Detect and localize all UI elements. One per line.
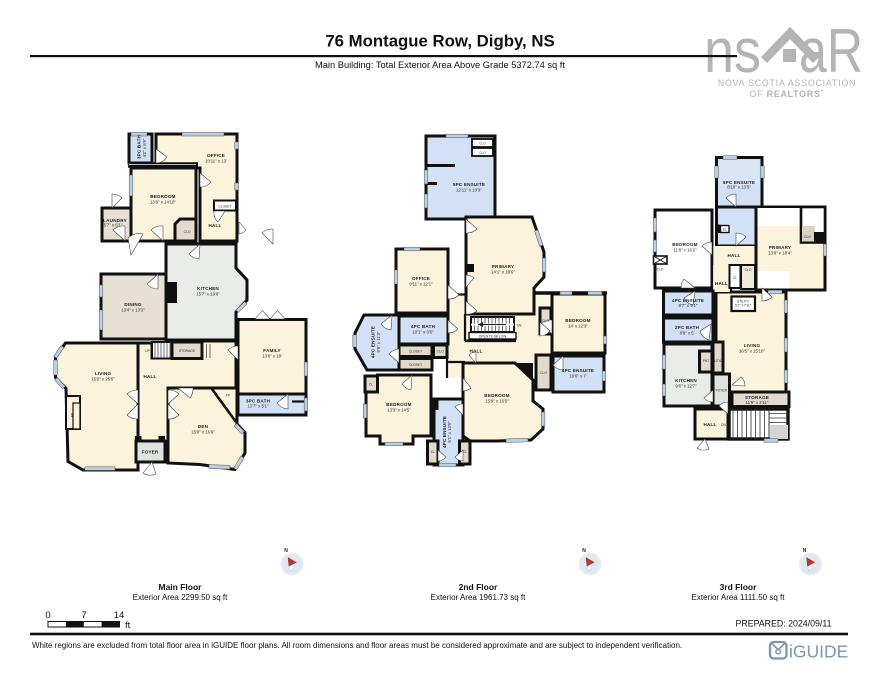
- svg-text:OPEN TO BELOW: OPEN TO BELOW: [479, 334, 507, 338]
- svg-text:14'1" x 18'6": 14'1" x 18'6": [491, 270, 515, 275]
- svg-text:BEDROOM: BEDROOM: [386, 402, 411, 407]
- svg-text:KITCHEN: KITCHEN: [675, 378, 697, 383]
- svg-text:CLOSET: CLOSET: [409, 350, 422, 354]
- svg-text:11'8" x 16'2": 11'8" x 16'2": [673, 248, 697, 253]
- svg-text:CLO: CLO: [184, 230, 191, 234]
- svg-text:14' x 12'3": 14' x 12'3": [568, 324, 588, 329]
- svg-text:OFFICE: OFFICE: [412, 276, 430, 281]
- svg-text:7: 7: [81, 610, 86, 621]
- svg-text:White regions are excluded fro: White regions are excluded from total fl…: [32, 641, 682, 650]
- svg-text:3rd Floor: 3rd Floor: [720, 582, 758, 592]
- svg-text:BEDROOM: BEDROOM: [484, 393, 509, 398]
- svg-text:4PC BATH: 4PC BATH: [411, 324, 436, 329]
- svg-text:Main Building: Total Exterior: Main Building: Total Exterior Area Above…: [315, 60, 565, 70]
- svg-text:ft: ft: [125, 620, 131, 631]
- svg-text:STORAGE: STORAGE: [179, 349, 196, 353]
- svg-text:UP: UP: [145, 349, 150, 353]
- svg-text:CLO: CLO: [540, 371, 547, 375]
- svg-text:3PC BATH: 3PC BATH: [137, 134, 142, 159]
- svg-text:13'6" x 18': 13'6" x 18': [262, 354, 282, 359]
- svg-text:76 Montague Row, Digby, NS: 76 Montague Row, Digby, NS: [325, 32, 554, 51]
- svg-text:13'7" x 5'1": 13'7" x 5'1": [247, 404, 269, 409]
- svg-text:11'9" x 2'11": 11'9" x 2'11": [746, 400, 769, 405]
- svg-text:Exterior Area 1111.50 sq ft: Exterior Area 1111.50 sq ft: [692, 593, 786, 602]
- svg-text:CLO: CLO: [745, 268, 752, 272]
- svg-text:BEDROOM: BEDROOM: [150, 194, 175, 199]
- svg-text:FOYER: FOYER: [716, 389, 728, 393]
- svg-text:FAMILY: FAMILY: [263, 348, 281, 353]
- svg-text:CL: CL: [431, 450, 435, 454]
- svg-text:5'7" x 6'1": 5'7" x 6'1": [104, 223, 123, 228]
- svg-text:0: 0: [45, 610, 50, 621]
- svg-text:CLO: CLO: [804, 235, 811, 239]
- svg-text:12'11" x 10'9": 12'11" x 10'9": [456, 188, 482, 193]
- svg-text:9'6" x 11'3": 9'6" x 11'3": [376, 331, 381, 352]
- svg-text:HALL: HALL: [703, 422, 716, 427]
- svg-text:PNT: PNT: [703, 359, 710, 363]
- svg-text:N: N: [803, 548, 807, 554]
- svg-text:NOVA SCOTIA ASSOCIATION: NOVA SCOTIA ASSOCIATION: [718, 78, 856, 88]
- svg-text:CLO: CLO: [542, 319, 549, 323]
- svg-text:Exterior Area 1961.73 sq ft: Exterior Area 1961.73 sq ft: [431, 593, 527, 602]
- svg-text:HALL: HALL: [469, 349, 482, 354]
- svg-text:OFFICE: OFFICE: [207, 153, 225, 158]
- svg-text:15'7" x 19'8": 15'7" x 19'8": [196, 292, 220, 297]
- svg-text:DN: DN: [721, 423, 726, 427]
- svg-text:PRIMARY: PRIMARY: [492, 264, 514, 269]
- svg-text:10'1" x 6'6": 10'1" x 6'6": [412, 330, 434, 335]
- svg-text:2PC BATH: 2PC BATH: [675, 325, 700, 330]
- svg-text:2nd Floor: 2nd Floor: [459, 582, 498, 592]
- svg-text:ns: ns: [704, 17, 761, 86]
- svg-text:HALL: HALL: [727, 253, 740, 258]
- svg-text:CL: CL: [463, 450, 467, 454]
- svg-text:5PC ENSUITE: 5PC ENSUITE: [453, 182, 485, 187]
- svg-text:OF REALTORS˚: OF REALTORS˚: [750, 89, 825, 99]
- svg-text:HALL: HALL: [715, 281, 728, 286]
- svg-text:CLO: CLO: [437, 350, 444, 354]
- svg-text:FOYER: FOYER: [142, 450, 159, 455]
- svg-text:N: N: [582, 548, 586, 554]
- svg-text:CLO: CLO: [479, 142, 486, 146]
- svg-text:15'9" x 16'5": 15'9" x 16'5": [485, 399, 509, 404]
- svg-text:iGUIDE: iGUIDE: [789, 642, 848, 662]
- svg-text:DN: DN: [517, 324, 522, 328]
- svg-text:HALL: HALL: [208, 223, 221, 228]
- svg-text:8'10" x 13'5": 8'10" x 13'5": [727, 185, 751, 190]
- svg-text:10'6" x 7': 10'6" x 7': [569, 374, 586, 379]
- svg-text:PREPARED: 2024/09/11: PREPARED: 2024/09/11: [735, 619, 831, 629]
- svg-text:PRIMARY: PRIMARY: [769, 245, 791, 250]
- svg-text:13'6" x 14'10": 13'6" x 14'10": [150, 200, 176, 205]
- svg-text:CLO: CLO: [657, 268, 664, 272]
- svg-text:9'6" x 12'7": 9'6" x 12'7": [675, 384, 697, 389]
- svg-text:10'11" x 13': 10'11" x 13': [205, 159, 227, 164]
- svg-text:4PC ENSUITE: 4PC ENSUITE: [562, 368, 594, 373]
- svg-text:15'0" x 25'6": 15'0" x 25'6": [91, 377, 115, 382]
- svg-text:CLOSET: CLOSET: [409, 363, 422, 367]
- svg-text:UTIL: UTIL: [714, 359, 721, 363]
- svg-text:EL: EL: [723, 228, 727, 232]
- svg-text:BEDROOM: BEDROOM: [672, 242, 697, 247]
- svg-text:5'2" x 7'11": 5'2" x 7'11": [735, 304, 752, 308]
- svg-text:6'1" x 13'9": 6'1" x 13'9": [447, 421, 452, 443]
- svg-text:13'8" x 18'4": 13'8" x 18'4": [768, 251, 792, 256]
- svg-text:BEDROOM: BEDROOM: [565, 318, 590, 323]
- svg-text:KITCHEN: KITCHEN: [197, 286, 219, 291]
- svg-text:LIVING: LIVING: [744, 343, 761, 348]
- svg-text:DINING: DINING: [124, 302, 142, 307]
- svg-text:Main Floor: Main Floor: [159, 582, 203, 592]
- svg-text:CL: CL: [369, 383, 373, 387]
- svg-text:4PC ENSUITE: 4PC ENSUITE: [371, 326, 376, 358]
- svg-text:16'5" x 15'10": 16'5" x 15'10": [739, 349, 765, 354]
- svg-text:CLOSET: CLOSET: [218, 205, 231, 209]
- svg-text:9'7" x 9'1": 9'7" x 9'1": [679, 303, 698, 308]
- svg-text:CL: CL: [733, 276, 737, 280]
- svg-text:13'3" x 14'5": 13'3" x 14'5": [387, 408, 411, 413]
- svg-text:14: 14: [114, 610, 125, 621]
- svg-text:9'11" x 12'1": 9'11" x 12'1": [409, 282, 433, 287]
- svg-text:4'2" x 5'9": 4'2" x 5'9": [142, 138, 147, 157]
- svg-text:13'4" x 13'3": 13'4" x 13'3": [121, 308, 145, 313]
- svg-text:DEN: DEN: [198, 424, 209, 429]
- svg-text:Exterior Area 2299.50 sq ft: Exterior Area 2299.50 sq ft: [133, 593, 229, 602]
- svg-text:LIVING: LIVING: [95, 371, 112, 376]
- svg-text:8'8" x 5': 8'8" x 5': [680, 331, 695, 336]
- svg-text:HALL: HALL: [143, 374, 156, 379]
- svg-text:15'8" x 16'6": 15'8" x 16'6": [191, 430, 215, 435]
- svg-text:CLO: CLO: [479, 151, 486, 155]
- svg-text:N: N: [284, 548, 288, 554]
